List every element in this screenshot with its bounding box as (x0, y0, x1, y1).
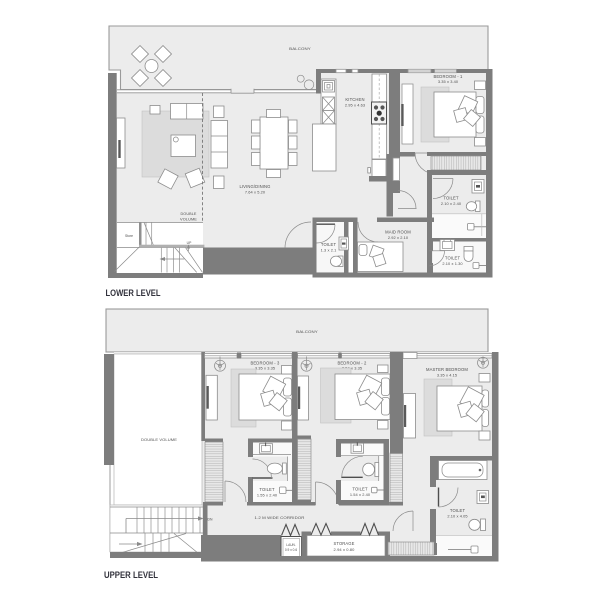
svg-text:7.64 x 5.20: 7.64 x 5.20 (245, 190, 266, 195)
svg-text:DN: DN (208, 518, 213, 522)
svg-text:TOILET: TOILET (443, 196, 459, 201)
svg-text:UP: UP (187, 241, 192, 245)
svg-text:KITCHEN: KITCHEN (345, 97, 364, 102)
svg-text:LAUN.: LAUN. (286, 543, 296, 547)
svg-text:TOILET: TOILET (445, 256, 461, 261)
svg-text:1.2 M WIDE CORRIDOR: 1.2 M WIDE CORRIDOR (255, 515, 305, 520)
svg-text:DOUBLE: DOUBLE (181, 211, 197, 216)
svg-text:TOILET: TOILET (321, 242, 337, 247)
svg-text:3.35 x 3.40: 3.35 x 3.40 (438, 79, 459, 84)
svg-text:LIVING/DINING: LIVING/DINING (239, 184, 270, 189)
svg-text:STORAGE: STORAGE (334, 541, 355, 546)
svg-text:Store: Store (125, 234, 133, 238)
svg-text:1.3 x 2.1: 1.3 x 2.1 (321, 248, 337, 253)
svg-text:2.95 x 4.63: 2.95 x 4.63 (345, 103, 365, 108)
svg-text:LOWER LEVEL: LOWER LEVEL (106, 288, 161, 298)
svg-text:2.92 x 2.10: 2.92 x 2.10 (388, 235, 409, 240)
svg-text:3.35 x 3.35: 3.35 x 3.35 (255, 366, 275, 371)
svg-text:2.94 x 0.80: 2.94 x 0.80 (334, 547, 356, 552)
svg-text:DOUBLE VOLUME: DOUBLE VOLUME (141, 437, 177, 442)
svg-text:TOILET: TOILET (352, 487, 368, 492)
svg-text:0.9 x 0.6: 0.9 x 0.6 (285, 548, 297, 552)
svg-text:3.35 x 4.15: 3.35 x 4.15 (437, 372, 457, 377)
svg-text:UPPER LEVEL: UPPER LEVEL (104, 570, 158, 580)
svg-text:2.10 x 1.30: 2.10 x 1.30 (442, 261, 463, 266)
svg-text:1.54 x 2.40: 1.54 x 2.40 (350, 492, 371, 497)
svg-text:2.10 x 2.40: 2.10 x 2.40 (441, 201, 462, 206)
svg-text:VOLUME: VOLUME (180, 217, 197, 222)
svg-text:2.10 x 4.05: 2.10 x 4.05 (447, 513, 467, 518)
svg-text:BALCONY: BALCONY (289, 46, 311, 51)
svg-text:TOILET: TOILET (259, 487, 275, 492)
svg-text:1.55 x 2.40: 1.55 x 2.40 (257, 493, 278, 498)
svg-text:TOILET: TOILET (450, 508, 466, 513)
svg-text:MASTER BEDROOM: MASTER BEDROOM (426, 367, 468, 372)
svg-text:MAID ROOM: MAID ROOM (385, 230, 411, 235)
svg-text:BALCONY: BALCONY (296, 329, 318, 334)
